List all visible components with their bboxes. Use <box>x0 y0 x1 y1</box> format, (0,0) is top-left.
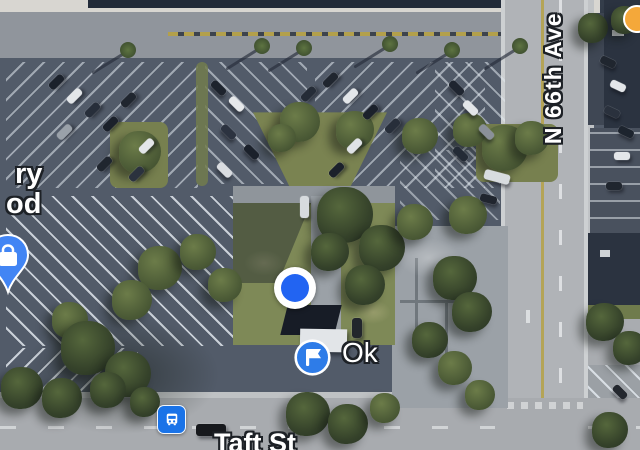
palm-tree <box>296 40 312 56</box>
store-pin-marker[interactable] <box>0 232 31 301</box>
car <box>614 152 630 160</box>
street-name-taft-st: Taft St <box>214 430 296 450</box>
palm-tree <box>444 42 460 58</box>
parking-flag-icon <box>294 339 331 376</box>
street-name-n-66th-ave: N 66th Ave <box>542 12 565 144</box>
tree <box>613 331 640 365</box>
car <box>606 182 622 190</box>
car <box>300 196 309 218</box>
palm-tree <box>512 38 528 54</box>
car <box>352 318 362 338</box>
parking-status-label[interactable]: Ok <box>342 339 378 367</box>
current-location-marker[interactable] <box>274 267 316 309</box>
palm-tree <box>120 42 136 58</box>
satellite-map[interactable]: ry od Ok <box>0 0 640 450</box>
bus-icon <box>163 411 181 429</box>
location-dot-icon <box>281 274 309 302</box>
store-pin-icon <box>0 232 31 296</box>
bus-stop-marker[interactable] <box>157 405 186 434</box>
palm-tree <box>254 38 270 54</box>
poi-label-line1: ry <box>15 160 42 189</box>
poi-label-line2: od <box>6 190 41 219</box>
palm-tree <box>382 36 398 52</box>
